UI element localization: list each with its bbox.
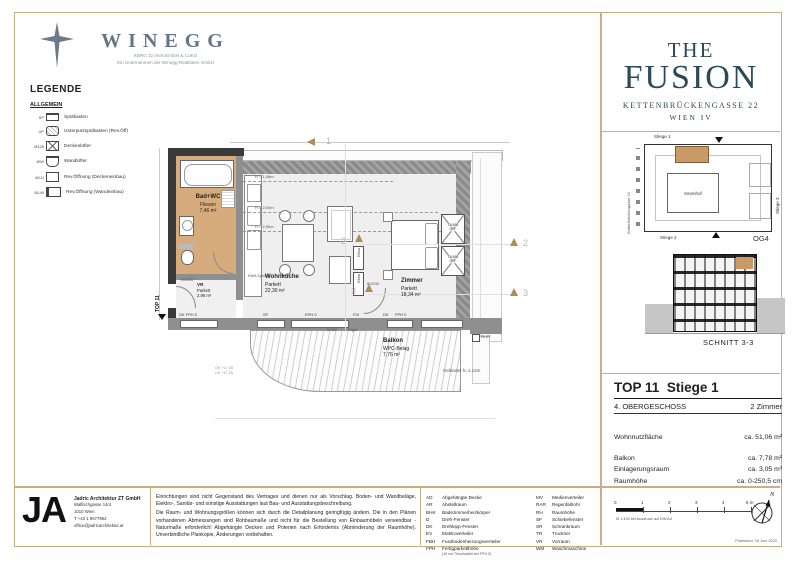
abbr-label: Regenfallrohr bbox=[552, 501, 580, 508]
abbr-label: Abgehängte Decke bbox=[442, 494, 482, 501]
unit-title: TOP 11 Stiege 1 bbox=[614, 380, 782, 399]
entry-arrow-icon bbox=[158, 314, 166, 320]
scale-tick-label: 0 bbox=[614, 500, 617, 505]
highlighted-unit bbox=[675, 146, 709, 163]
floor-tag: OG4 bbox=[753, 234, 769, 243]
abbr: TR bbox=[536, 530, 552, 537]
kitchen-sink bbox=[247, 184, 261, 202]
legend-abbr: SP bbox=[30, 115, 44, 120]
scale-tick bbox=[670, 507, 671, 513]
section-arrow-icon bbox=[307, 138, 315, 146]
abbr: SF bbox=[536, 516, 552, 523]
legend-abbr: Ø125 bbox=[30, 144, 44, 149]
area-value: ca. 51,06 m² bbox=[744, 432, 782, 444]
disclaimer-paragraph-2: Die Raum- und Wohnungsgrößen können sich… bbox=[156, 510, 416, 539]
area-row: Wohnnutzfläche ca. 51,06 m² bbox=[614, 432, 782, 444]
legend-item: SP Spülkasten bbox=[30, 113, 160, 121]
room-name: Wohnküche bbox=[265, 274, 299, 280]
height-label: H = 2,00m bbox=[255, 206, 274, 211]
wc bbox=[181, 250, 194, 265]
project-title-block: THE FUSION KETTENBRÜCKENGASSE 22 WIEN IV bbox=[602, 38, 780, 122]
abbr-row: DKDrehkipp-Fenster bbox=[426, 523, 526, 530]
legend-label: Rev.Öffnung (Deckeneinbau) bbox=[64, 175, 126, 180]
north-marker-icon bbox=[715, 137, 723, 143]
dimension-line-bottom bbox=[215, 418, 495, 419]
room-label-vr: VR Parkett 2,96 m² bbox=[197, 282, 211, 299]
cistern-icon bbox=[46, 113, 59, 121]
washbasin-bowl bbox=[182, 220, 193, 231]
abbr: VR bbox=[536, 538, 552, 545]
room-area: 22,30 m² bbox=[265, 288, 285, 294]
door-dimension: 90/230 bbox=[181, 278, 193, 283]
abbr-row: BHKBadezimmerheizkörper bbox=[426, 509, 526, 516]
abbr: RH bbox=[536, 509, 552, 516]
section-arrow-icon bbox=[365, 284, 373, 292]
abbr-label: Drehkipp-Fenster bbox=[442, 523, 478, 530]
window-label: FPH 0 bbox=[395, 312, 406, 317]
abbr-row: ARAbstellraum bbox=[426, 501, 526, 508]
room-area: 18,34 m² bbox=[401, 292, 421, 298]
abbr: WM bbox=[536, 545, 552, 552]
abbr-label: Schiebefenster bbox=[552, 516, 583, 523]
abbr-label: Trockner bbox=[552, 530, 570, 537]
room-label-bad: Bad+WC Fliesen 7,46 m² bbox=[185, 194, 231, 215]
abbreviations: ADAbgehängte Decke ARAbstellraum BHKBade… bbox=[426, 494, 616, 556]
scale-tick-label: 2 bbox=[668, 500, 671, 505]
legend-section: ALLGEMEIN bbox=[30, 102, 160, 108]
railing-label: Geländer h=1,12m bbox=[443, 368, 480, 373]
abbr-label: Badezimmerheizkörper bbox=[442, 509, 490, 516]
section-arrow-icon bbox=[355, 234, 363, 242]
floor-plan: DK FPH 0 SF EPH 0 FIX DK FPH 0 TOP 11 90… bbox=[155, 128, 555, 442]
street-label: Kettenbrückengasse 22 bbox=[626, 150, 631, 234]
room-label-wohnkueche: Wohnküche Parkett 22,30 m² bbox=[265, 274, 299, 295]
ground-left bbox=[645, 304, 673, 334]
wc-cistern bbox=[179, 244, 193, 249]
wall-bottom-right bbox=[470, 318, 502, 334]
abbr: D bbox=[426, 516, 442, 523]
upper-terrace-strip bbox=[241, 150, 503, 161]
chair bbox=[279, 210, 291, 222]
fph-note: (±0 cm Türschwelle bei FPH 0) bbox=[442, 552, 526, 556]
legend-abbr: Ø90 bbox=[30, 159, 44, 164]
klima-label: Klima bbox=[357, 248, 361, 257]
brand-subtitle-2: Ein Unternehmen der Winegg Realitäten Gm… bbox=[78, 60, 253, 67]
drain-label: 50/50 bbox=[327, 328, 337, 333]
winegg-logo bbox=[40, 22, 74, 73]
room-floor: Fliesen bbox=[200, 202, 216, 208]
scale-tick bbox=[724, 507, 725, 513]
scale-tick bbox=[697, 507, 698, 513]
entry-door-opening bbox=[168, 284, 176, 308]
level-uk: UK +17,25 bbox=[215, 371, 233, 376]
pillow bbox=[425, 247, 438, 269]
legend-item: Ø90 Wandlüfter bbox=[30, 156, 160, 167]
room-floor: WPC-Belag bbox=[383, 346, 409, 352]
abbr: AR bbox=[426, 501, 442, 508]
unit-floor-row: 4. OBERGESCHOSS 2 Zimmer bbox=[614, 399, 782, 414]
project-title-line2: FUSION bbox=[602, 59, 780, 97]
architect-logo: JA bbox=[22, 489, 66, 531]
rar-pipe bbox=[472, 334, 480, 342]
legend-title: LEGENDE bbox=[30, 84, 160, 95]
scale-tick-label: 4 bbox=[722, 500, 725, 505]
klima-unit: Klima bbox=[353, 246, 364, 270]
wardrobe-note: OFF bbox=[442, 227, 464, 231]
legend-item: 60-D Rev.Öffnung (Deckeneinbau) bbox=[30, 172, 160, 182]
level-labels: OK +17,35 UK +17,25 bbox=[215, 366, 233, 375]
brand-block: WINEGG KBRG 22 ImmoGmbH & CoKG Ein Unter… bbox=[78, 30, 253, 67]
room-floor: Parkett bbox=[197, 288, 210, 293]
section-marker-2: 2 bbox=[341, 236, 346, 246]
legend-label: Deckenlüfter bbox=[64, 144, 91, 149]
wardrobe: 74/160 OFF bbox=[441, 214, 465, 244]
abbr: FPH bbox=[426, 545, 442, 552]
wall-bad-kitchen bbox=[236, 156, 243, 300]
abbr-row: FBHFussbodenheizungsverteiler bbox=[426, 538, 526, 545]
architect-info: Jadric Architektur ZT GmbH Walfischgasse… bbox=[74, 496, 141, 530]
unit-stiege: Stiege 1 bbox=[667, 380, 719, 395]
railing-line bbox=[480, 158, 481, 336]
area-value: ca. 7,78 m² bbox=[748, 453, 782, 465]
abbr-row: RHRaumhöhe bbox=[536, 509, 616, 516]
street-facade-detail bbox=[636, 148, 640, 226]
legend: LEGENDE ALLGEMEIN SP Spülkasten UP Unter… bbox=[30, 84, 160, 197]
legend-label: Unterputzspülkasten (Rev.Öff) bbox=[64, 129, 128, 134]
area-label: Raumhöhe bbox=[614, 476, 647, 488]
abbreviations-left: ADAbgehängte Decke ARAbstellraum BHKBade… bbox=[426, 494, 526, 556]
wardrobe: 74/160 OFF bbox=[441, 246, 465, 276]
ceiling-vent-icon bbox=[46, 141, 59, 151]
stiege2-label: Stiege 2 bbox=[660, 235, 677, 240]
unit-rooms: 2 Zimmer bbox=[750, 402, 782, 411]
legend-item: UP Unterputzspülkasten (Rev.Öff) bbox=[30, 126, 160, 136]
nightstand bbox=[383, 270, 393, 280]
window bbox=[421, 320, 463, 328]
brand-name: WINEGG bbox=[78, 30, 253, 53]
abbr-row: SFSchiebefenster bbox=[536, 516, 616, 523]
legend-item: 60-W Rev.Öffnung (Wandeinbau) bbox=[30, 187, 160, 197]
abbr: RAR bbox=[536, 501, 552, 508]
abbr-label: Raumhöhe bbox=[552, 509, 575, 516]
area-label: Balkon bbox=[614, 453, 635, 465]
wall-vent-icon bbox=[46, 156, 59, 167]
pillow bbox=[425, 223, 438, 245]
area-row: Raumhöhe ca. 0-250,5 cm bbox=[614, 476, 782, 488]
stiege3-label: Stiege 3 bbox=[775, 174, 780, 214]
abbr: DK bbox=[426, 523, 442, 530]
window bbox=[257, 320, 285, 328]
courtyard: Innenhof bbox=[667, 173, 719, 213]
nightstand bbox=[383, 212, 393, 222]
window-label: FIX bbox=[353, 312, 359, 317]
firm-city: 1010 Wien bbox=[74, 509, 141, 516]
room-name: Zimmer bbox=[401, 278, 423, 284]
dimension-line-top bbox=[230, 142, 510, 143]
abbr-row: RARRegenfallrohr bbox=[536, 501, 616, 508]
legend-abbr: 60-W bbox=[30, 190, 44, 195]
abbr: MV bbox=[536, 494, 552, 501]
area-value: ca. 0-250,5 cm bbox=[737, 476, 782, 488]
dining-table bbox=[282, 224, 314, 262]
scale-note: M 1:100 bei Ausdruck auf DIN A4 bbox=[616, 517, 672, 521]
wardrobe-note: OFF bbox=[442, 259, 464, 263]
area-label: Wohnnutzfläche bbox=[614, 432, 663, 444]
stiege1-label: Stiege 1 bbox=[654, 134, 671, 139]
entry-label: TOP 11 bbox=[155, 276, 161, 312]
courtyard-label: Innenhof bbox=[684, 191, 702, 196]
area-row: Balkon ca. 7,78 m² bbox=[614, 453, 782, 465]
abbr-row: WMWaschmaschine bbox=[536, 545, 616, 552]
site-room bbox=[749, 163, 771, 187]
abbr-row: VRVorraum bbox=[536, 538, 616, 545]
brand-subtitle-1: KBRG 22 ImmoGmbH & CoKG bbox=[78, 53, 253, 60]
site-plan: Kettenbrückengasse 22 Innenhof Stiege 1 … bbox=[620, 134, 790, 250]
abbr-label: Dreh-Fenster bbox=[442, 516, 470, 523]
disclaimer: Einrichtungen sind nicht Gegenstand des … bbox=[156, 494, 416, 539]
plan-sheet: WINEGG KBRG 22 ImmoGmbH & CoKG Ein Unter… bbox=[0, 0, 800, 566]
abbr-label: Vorraum bbox=[552, 538, 570, 545]
area-label: Einlagerungsraum bbox=[614, 464, 669, 476]
section-marker-3: 3 bbox=[523, 288, 528, 298]
window bbox=[180, 320, 218, 328]
balcony bbox=[250, 330, 461, 392]
room-area: 7,46 m² bbox=[200, 208, 217, 214]
sideboard bbox=[329, 256, 351, 284]
compass-icon bbox=[750, 497, 776, 525]
abbr-label: Fertigparketthöhe bbox=[442, 545, 479, 552]
site-room bbox=[749, 193, 771, 219]
height-label: H = 1,08m bbox=[255, 175, 274, 180]
abbr-label: Elektroverteiler bbox=[442, 530, 473, 537]
window-label: DK FPH 0 bbox=[179, 312, 197, 317]
highlighted-unit-section bbox=[736, 257, 753, 269]
legend-label: Rev.Öffnung (Wandeinbau) bbox=[66, 190, 124, 195]
abbr-row: DDreh-Fenster bbox=[426, 516, 526, 523]
room-area: 2,96 m² bbox=[197, 293, 211, 298]
ground-right bbox=[757, 298, 785, 334]
room-label-zimmer: Zimmer Parkett 18,34 m² bbox=[401, 278, 423, 299]
area-value: ca. 3,05 m³ bbox=[748, 464, 782, 476]
legend-label: Wandlüfter bbox=[64, 159, 87, 164]
unit-areas: Wohnnutzfläche ca. 51,06 m² Balkon ca. 7… bbox=[614, 432, 782, 487]
room-name: Bad+WC bbox=[196, 194, 221, 200]
legend-abbr: 60-D bbox=[30, 175, 44, 180]
room-floor: Parkett bbox=[265, 282, 281, 288]
window-label: SF bbox=[263, 312, 268, 317]
firm-email: office@jadricarchitektur.at bbox=[74, 523, 141, 530]
legend-item: Ø125 Deckenlüfter bbox=[30, 141, 160, 151]
abbr: FBH bbox=[426, 538, 442, 545]
abbr-row: EVElektroverteiler bbox=[426, 530, 526, 537]
room-label-balkon: Balkon WPC-Belag 7,76 m² bbox=[383, 338, 409, 359]
planstand: Planstand: 18 Juni 2020 bbox=[735, 538, 777, 543]
section-line-2 bbox=[360, 244, 512, 245]
abbr-row: ADAbgehängte Decke bbox=[426, 494, 526, 501]
window-label: EPH 0 bbox=[305, 312, 317, 317]
abbr-label: Schrankraum bbox=[552, 523, 580, 530]
abbr-label: Waschmaschine bbox=[552, 545, 586, 552]
section-marker-2: 2 bbox=[523, 238, 528, 248]
section-line-3 bbox=[368, 294, 512, 295]
unit-top-number: TOP 11 bbox=[614, 380, 659, 395]
section-marker-1: 1 bbox=[326, 136, 331, 146]
chair bbox=[303, 210, 315, 222]
abbr-label: Abstellraum bbox=[442, 501, 467, 508]
room-name: VR bbox=[197, 282, 203, 287]
scale-tick bbox=[643, 507, 644, 513]
chair bbox=[303, 264, 315, 276]
south-marker-icon bbox=[712, 232, 720, 238]
section-building bbox=[673, 254, 757, 332]
section-drawing: SCHNITT 3-3 bbox=[645, 248, 785, 350]
abbr: AD bbox=[426, 494, 442, 501]
compass-north-label: N bbox=[770, 491, 774, 498]
scale-tick-label: 1 bbox=[641, 500, 644, 505]
project-city: WIEN IV bbox=[602, 113, 780, 122]
area-row: Einlagerungsraum ca. 3,05 m³ bbox=[614, 464, 782, 476]
scale-bar-line bbox=[616, 511, 751, 512]
height-label: H = 2,50m bbox=[255, 225, 274, 230]
scale-area: 0 1 2 3 4 5 m M 1:100 bei Ausdruck auf D… bbox=[606, 487, 781, 545]
concealed-cistern-icon bbox=[46, 126, 59, 136]
wall-top bbox=[235, 161, 471, 174]
room-area: 7,76 m² bbox=[383, 352, 400, 358]
abbr-row: MVMedienverteiler bbox=[536, 494, 616, 501]
rigol-label: Rigol bbox=[348, 328, 357, 333]
section-arrow-icon bbox=[510, 238, 518, 246]
abbr-row: FPHFertigparketthöhe bbox=[426, 545, 526, 552]
window-label: DK bbox=[383, 312, 389, 317]
room-floor: Parkett bbox=[401, 286, 417, 292]
legend-abbr: UP bbox=[30, 129, 44, 134]
firm-phone: T +43 1 9577952 bbox=[74, 516, 141, 523]
neighbor-terrace bbox=[472, 152, 502, 342]
section-arrow-icon bbox=[510, 288, 518, 296]
klima-label: Klima bbox=[357, 274, 361, 283]
abbr: EV bbox=[426, 530, 442, 537]
abbreviations-right: MVMedienverteiler RARRegenfallrohr RHRau… bbox=[536, 494, 616, 556]
height-line bbox=[243, 181, 393, 182]
bathtub-basin bbox=[184, 164, 232, 186]
ground-line bbox=[645, 333, 785, 334]
abbr: SR bbox=[536, 523, 552, 530]
abbr-row: TRTrockner bbox=[536, 530, 616, 537]
revision-opening-ceiling-icon bbox=[46, 172, 59, 182]
title-block-footer: JA Jadric Architektur ZT GmbH Walfischga… bbox=[14, 487, 781, 545]
neighbor-wall bbox=[472, 336, 490, 384]
kitchen-appliance bbox=[247, 230, 261, 250]
legend-label: Spülkasten bbox=[64, 115, 88, 120]
unit-floor: 4. OBERGESCHOSS bbox=[614, 402, 686, 411]
section-marker-3: 3 bbox=[351, 286, 356, 296]
unit-info: TOP 11 Stiege 1 4. OBERGESCHOSS 2 Zimmer… bbox=[614, 380, 782, 487]
project-address: KETTENBRÜCKENGASSE 22 bbox=[602, 101, 780, 110]
revision-opening-wall-icon bbox=[46, 187, 61, 197]
window bbox=[387, 320, 413, 328]
rar-label: RAR bbox=[481, 334, 491, 339]
winegg-star-icon bbox=[40, 22, 74, 68]
unit-divider bbox=[600, 373, 780, 374]
building-outline: Innenhof bbox=[644, 144, 772, 232]
abbr-label: Medienverteiler bbox=[552, 494, 584, 501]
room-name: Balkon bbox=[383, 338, 403, 344]
abbr: BHK bbox=[426, 509, 442, 516]
level-ok: OK +17,35 bbox=[215, 366, 233, 371]
scale-tick-label: 3 bbox=[695, 500, 698, 505]
fusion-divider bbox=[600, 131, 780, 132]
disclaimer-paragraph-1: Einrichtungen sind nicht Gegenstand des … bbox=[156, 494, 416, 508]
firm-address: Walfischgasse 14/4 bbox=[74, 502, 141, 509]
wall-top-left bbox=[168, 148, 244, 156]
abbr-row: SRSchrankraum bbox=[536, 523, 616, 530]
abbr-label: Fussbodenheizungsverteiler bbox=[442, 538, 501, 545]
window bbox=[291, 320, 349, 328]
section-label: SCHNITT 3-3 bbox=[703, 338, 754, 347]
